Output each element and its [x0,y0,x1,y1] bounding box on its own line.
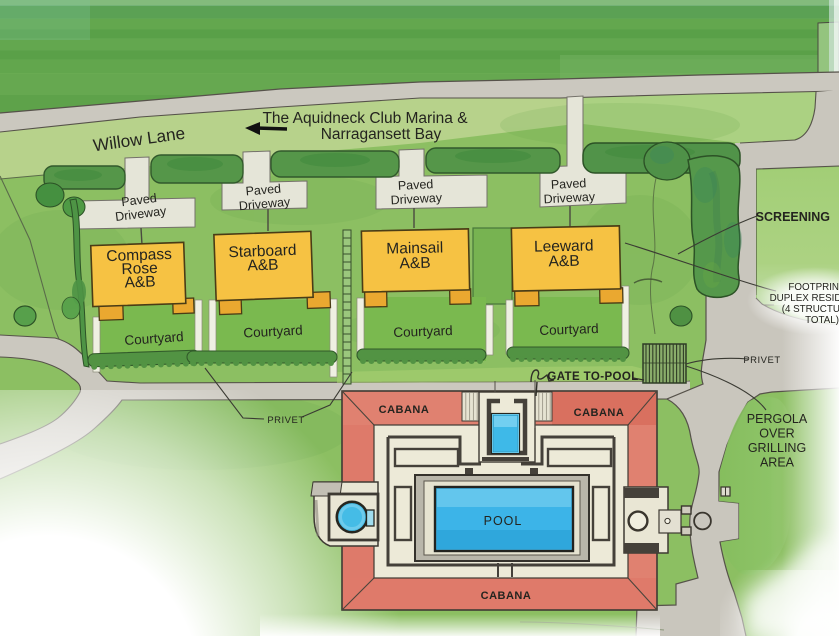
svg-text:A&B: A&B [124,273,156,291]
svg-text:(4 STRUCTUR: (4 STRUCTUR [782,304,839,315]
svg-text:Driveway: Driveway [543,190,596,207]
svg-text:POOL: POOL [484,514,523,528]
svg-text:Narragansett Bay: Narragansett Bay [321,126,442,143]
svg-text:GATE TO-POOL: GATE TO-POOL [547,371,638,383]
svg-text:PERGOLA: PERGOLA [747,412,808,426]
svg-text:GRILLING: GRILLING [748,441,806,455]
svg-text:DUPLEX RESIDE: DUPLEX RESIDE [770,293,839,304]
svg-text:FOOTPRINT: FOOTPRINT [788,282,839,293]
svg-text:SCREENING: SCREENING [756,210,830,224]
svg-text:PRIVET: PRIVET [267,415,304,426]
svg-text:The Aquidneck Club Marina &: The Aquidneck Club Marina & [262,110,468,127]
svg-text:OVER: OVER [759,427,794,441]
svg-text:Courtyard: Courtyard [243,322,303,340]
svg-text:Driveway: Driveway [390,191,443,208]
svg-text:Courtyard: Courtyard [539,321,599,338]
svg-text:PRIVET: PRIVET [743,355,780,366]
svg-text:CABANA: CABANA [481,590,532,602]
svg-text:A&B: A&B [399,255,430,273]
svg-text:A&B: A&B [548,253,579,271]
svg-text:AREA: AREA [760,456,795,470]
svg-text:CABANA: CABANA [574,407,625,419]
svg-text:CABANA: CABANA [379,404,430,416]
svg-text:A&B: A&B [247,256,279,274]
svg-text:Courtyard: Courtyard [393,323,453,340]
svg-text:TOTAL): TOTAL) [805,315,839,326]
